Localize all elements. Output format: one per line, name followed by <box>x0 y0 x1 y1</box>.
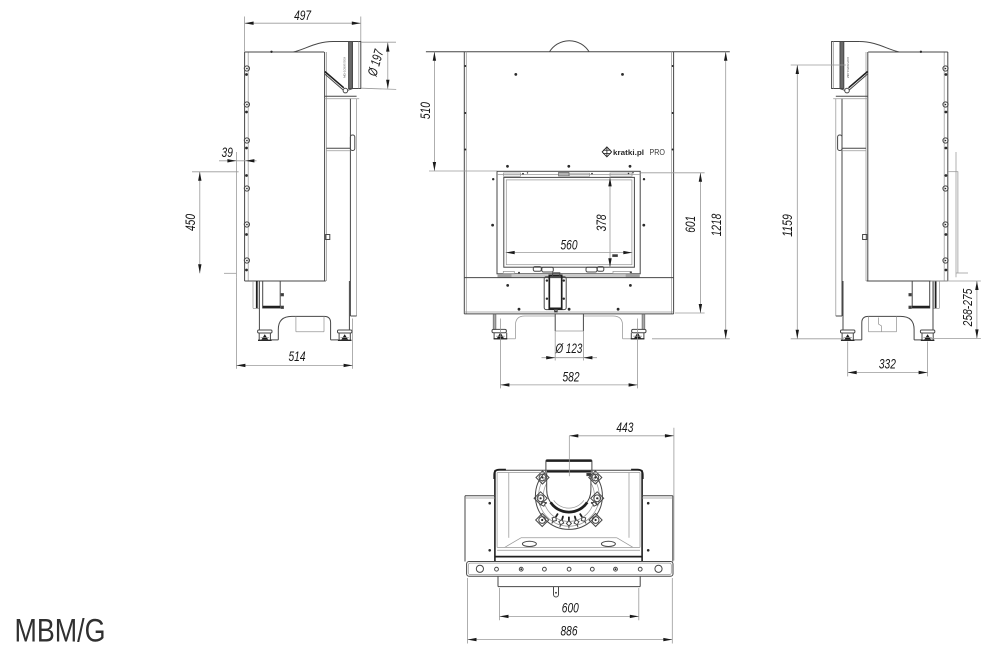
svg-text:510: 510 <box>418 102 433 119</box>
svg-text:332: 332 <box>879 356 896 371</box>
svg-text:450: 450 <box>183 214 198 231</box>
svg-text:514: 514 <box>289 349 306 364</box>
svg-text:MD-10597/S09: MD-10597/S09 <box>343 57 347 78</box>
svg-text:582: 582 <box>563 369 580 384</box>
svg-text:MD-10597/S09: MD-10597/S09 <box>846 57 850 78</box>
svg-text:PRO: PRO <box>650 148 666 157</box>
svg-text:Ø 123: Ø 123 <box>555 341 583 356</box>
svg-text:kratki.pl: kratki.pl <box>613 148 644 157</box>
svg-text:600: 600 <box>562 600 579 615</box>
svg-text:886: 886 <box>561 624 578 639</box>
svg-text:497: 497 <box>294 8 311 23</box>
svg-text:258-275: 258-275 <box>960 288 975 327</box>
svg-text:378: 378 <box>594 214 609 231</box>
svg-text:39: 39 <box>222 145 234 160</box>
svg-text:443: 443 <box>616 420 633 435</box>
svg-text:1218: 1218 <box>709 213 724 236</box>
svg-text:MBM/G: MBM/G <box>15 613 106 649</box>
svg-text:560: 560 <box>561 237 578 252</box>
svg-text:1159: 1159 <box>780 214 795 237</box>
svg-text:601: 601 <box>683 216 698 233</box>
